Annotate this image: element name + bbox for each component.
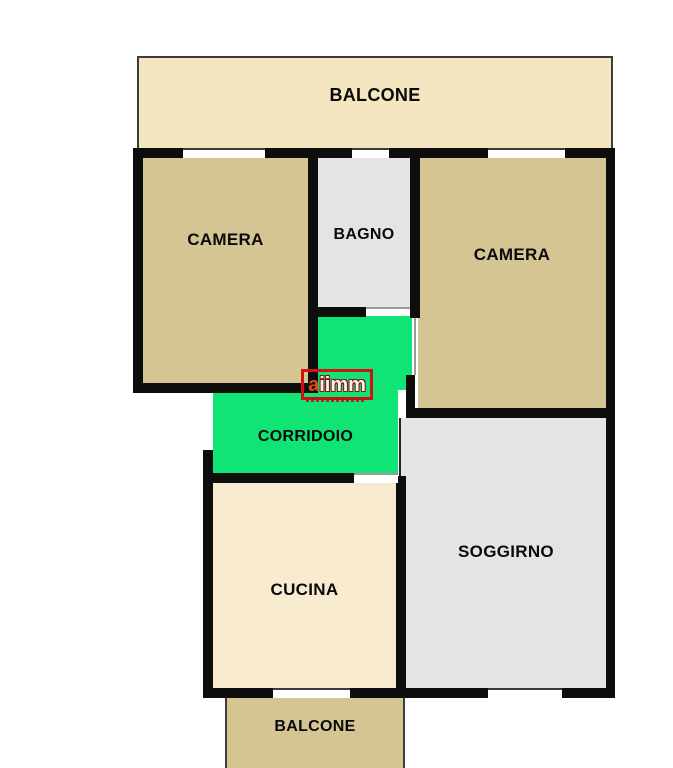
watermark-logo: aiimm [301, 369, 373, 400]
room-label-balcone-bottom: BALCONE [225, 718, 405, 736]
window-opening-cucina-balcone [273, 688, 350, 698]
watermark-first-letter: a [308, 375, 319, 395]
watermark-rest-letters: iimm [319, 375, 366, 395]
watermark-subtext-strip [306, 397, 364, 402]
window-opening-bagno [352, 148, 389, 158]
wall-bagno-camera-right [410, 148, 420, 318]
room-label-soggirno: SOGGIRNO [406, 543, 606, 561]
room-label-camera-left: CAMERA [143, 231, 308, 249]
floorplan-canvas: BALCONE CAMERA BAGNO CAMERA CORRIDOIO CU… [0, 0, 673, 768]
passage-line-soggirno [399, 418, 401, 476]
wall-left-lower [203, 450, 213, 698]
room-label-bagno: BAGNO [318, 226, 410, 244]
wall-cucina-soggirno [396, 476, 406, 698]
room-label-corridoio: CORRIDOIO [213, 428, 398, 446]
wall-right [606, 148, 615, 698]
door-opening-cucina [354, 473, 398, 483]
window-opening-camera-right [488, 148, 565, 158]
window-opening-camera-left [183, 148, 265, 158]
wall-camera-right-bottom [406, 408, 615, 418]
door-line-camera-right [414, 318, 416, 375]
room-label-camera-right: CAMERA [418, 246, 606, 264]
wall-camera-bagno [308, 148, 318, 393]
wall-left-upper [133, 148, 143, 393]
room-label-cucina: CUCINA [213, 581, 396, 599]
wall-corridoio-cucina [203, 473, 354, 483]
room-camera-left [143, 158, 308, 387]
window-opening-soggirno [488, 688, 562, 698]
room-label-balcone-top: BALCONE [137, 86, 613, 104]
wall-camera-left-bottom [133, 383, 318, 393]
room-camera-right [418, 158, 606, 408]
wall-bagno-bottom [308, 307, 366, 317]
door-opening-bagno [366, 307, 410, 316]
